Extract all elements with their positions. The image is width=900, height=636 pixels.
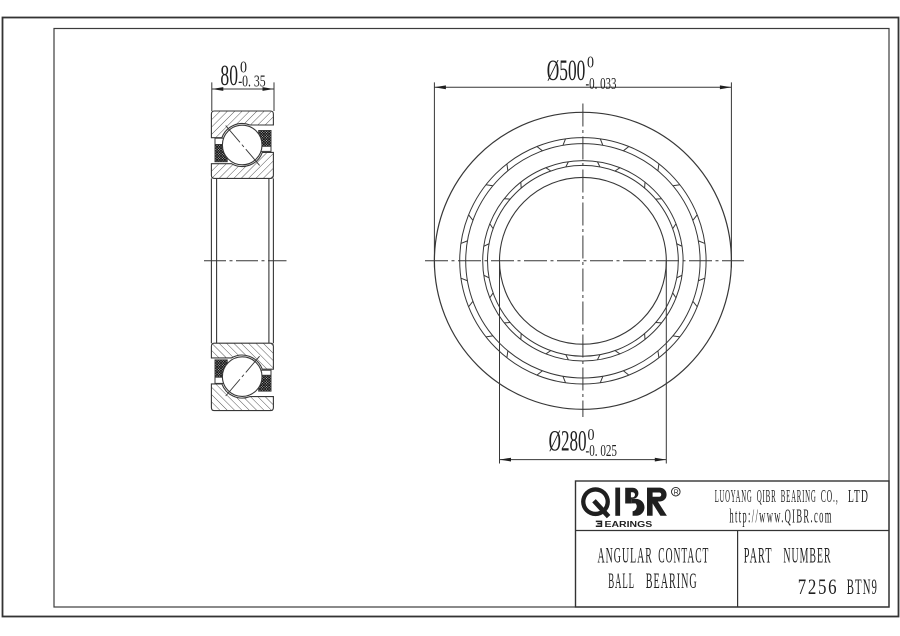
svg-text:BEARING: BEARING	[646, 568, 698, 593]
svg-text:BEARING: BEARING	[781, 486, 817, 506]
svg-text:QIBR: QIBR	[757, 486, 777, 506]
svg-text:-0. 35: -0. 35	[238, 72, 266, 91]
svg-text:LTD: LTD	[848, 486, 869, 506]
svg-text:EARINGS: EARINGS	[605, 519, 653, 529]
svg-text:ANGULAR: ANGULAR	[598, 543, 653, 568]
svg-text:-0. 025: -0. 025	[586, 441, 618, 460]
svg-text:Ø280: Ø280	[549, 425, 587, 458]
svg-text:PART: PART	[744, 543, 773, 568]
svg-text:0: 0	[587, 53, 594, 72]
svg-text:NUMBER: NUMBER	[783, 543, 831, 568]
svg-text:BALL: BALL	[608, 568, 635, 593]
svg-text:LUOYANG: LUOYANG	[715, 486, 753, 506]
svg-text:-0. 033: -0. 033	[586, 74, 617, 93]
svg-text:BTN9: BTN9	[847, 574, 878, 599]
svg-text:CONTACT: CONTACT	[658, 543, 709, 568]
svg-text:80: 80	[220, 59, 238, 92]
svg-text:R: R	[674, 489, 679, 496]
svg-text:7256: 7256	[798, 574, 839, 599]
svg-text:Ø500: Ø500	[547, 54, 586, 87]
svg-text:http://www.QIBR.com: http://www.QIBR.com	[729, 506, 832, 527]
svg-text:CO.,: CO.,	[821, 486, 839, 506]
